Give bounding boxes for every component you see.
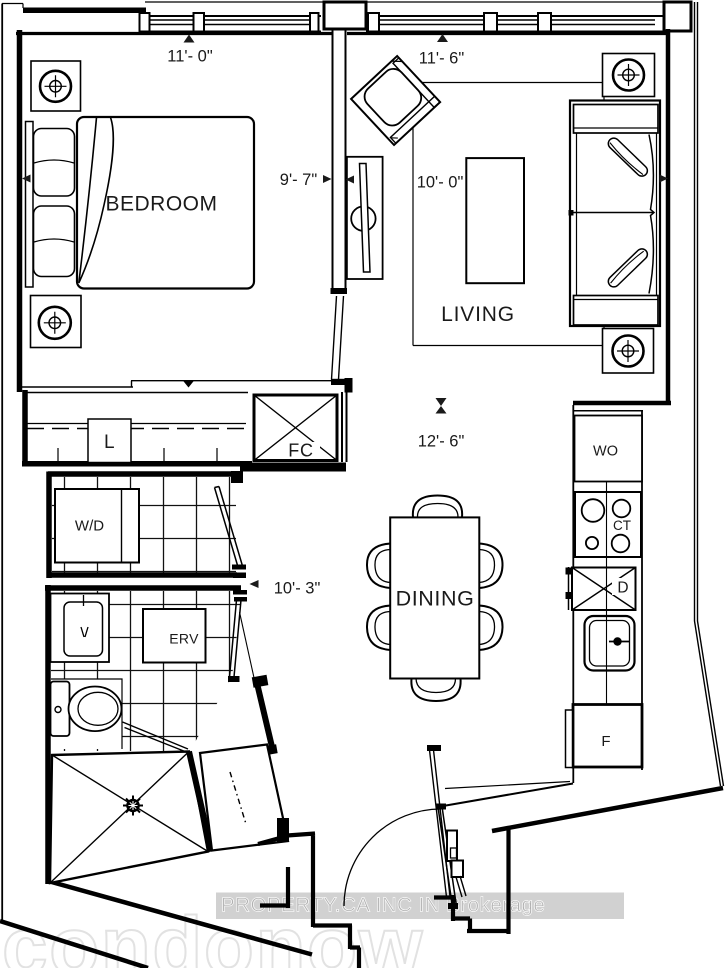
- svg-text:WO: WO: [593, 444, 618, 460]
- svg-text:LIVING: LIVING: [441, 303, 515, 326]
- svg-text:12'- 6": 12'- 6": [418, 433, 465, 451]
- svg-text:CT: CT: [613, 518, 631, 533]
- svg-text:DINING: DINING: [396, 587, 475, 611]
- svg-text:BEDROOM: BEDROOM: [105, 193, 217, 216]
- svg-text:FC: FC: [288, 441, 314, 461]
- svg-text:10'- 0": 10'- 0": [417, 174, 464, 192]
- svg-text:11'- 6": 11'- 6": [419, 50, 465, 68]
- svg-text:ERV: ERV: [169, 631, 199, 647]
- svg-text:D: D: [617, 580, 628, 597]
- svg-text:L: L: [104, 432, 115, 453]
- svg-text:9'- 7": 9'- 7": [280, 171, 318, 189]
- svg-text:10'- 3": 10'- 3": [274, 580, 321, 598]
- svg-text:W/D: W/D: [75, 518, 104, 535]
- svg-text:F: F: [601, 733, 610, 750]
- svg-text:11'- 0": 11'- 0": [167, 48, 213, 66]
